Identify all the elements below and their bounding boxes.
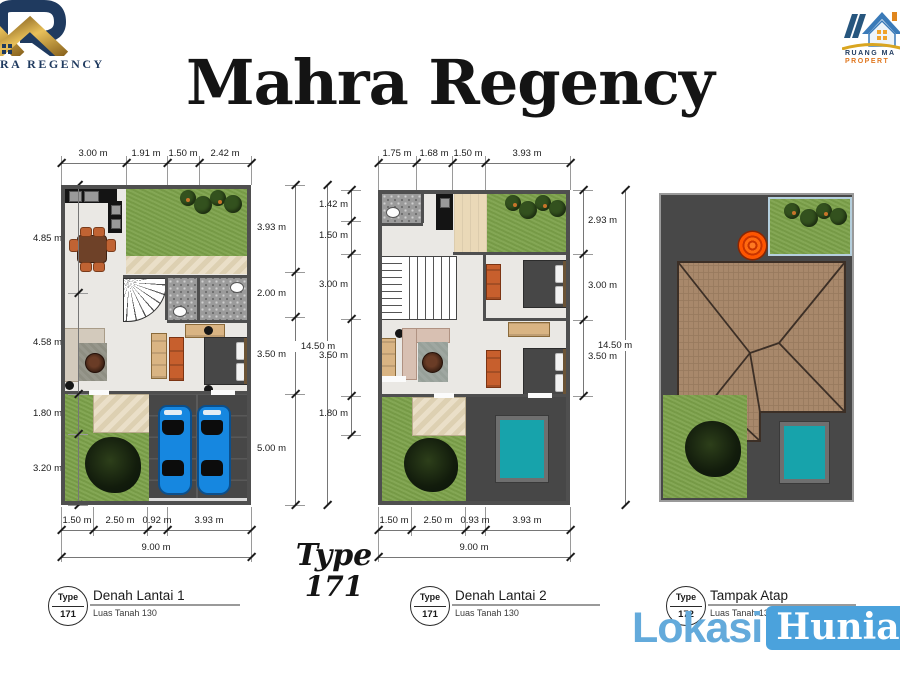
dim-label: 3.93 m bbox=[505, 148, 549, 159]
plan2-stairs bbox=[381, 256, 457, 320]
dim-label: 3.93 m bbox=[242, 222, 286, 233]
dim-ext bbox=[251, 507, 252, 536]
badge-divider bbox=[52, 606, 84, 607]
window bbox=[528, 393, 552, 398]
car-hood bbox=[203, 410, 221, 415]
dim-label: 5.00 m bbox=[242, 443, 286, 454]
dim-label: 1.50 m bbox=[302, 230, 348, 241]
car-rear-window bbox=[162, 460, 184, 476]
badge-type-number: 171 bbox=[411, 609, 449, 620]
dim-label: 1.50 m bbox=[446, 148, 490, 159]
plan2-roof-garden bbox=[487, 193, 567, 253]
shrub bbox=[224, 195, 242, 213]
dim-label: 3.00 m bbox=[71, 148, 115, 159]
slide: RA REGENCY Mahra Regency RUANG MA PROPER… bbox=[0, 0, 900, 675]
stove bbox=[84, 191, 99, 202]
dim-label: 3.00 m bbox=[302, 279, 348, 290]
skylight bbox=[496, 416, 548, 482]
dim-label: 2.93 m bbox=[588, 215, 632, 226]
caption-underline bbox=[452, 604, 600, 606]
type-display: Type 171 bbox=[282, 540, 386, 602]
floor-plan-1 bbox=[61, 185, 251, 505]
dim-line bbox=[78, 185, 79, 505]
roof-plan bbox=[659, 193, 854, 502]
appliance bbox=[440, 198, 450, 208]
car bbox=[197, 405, 231, 495]
dim-line bbox=[378, 530, 570, 531]
plan3-title: Tampak Atap bbox=[710, 588, 788, 603]
dim-label: 4.85 m bbox=[16, 233, 62, 244]
plan2-bathroom bbox=[381, 193, 421, 223]
sofa bbox=[402, 328, 417, 380]
sink bbox=[69, 191, 82, 202]
plan1-type-badge: Type 171 bbox=[48, 586, 88, 626]
dim-label: 0.93 m bbox=[453, 515, 497, 526]
type-display-number: 171 bbox=[282, 572, 386, 602]
page-title: Mahra Regency bbox=[0, 46, 900, 119]
watermark-hunian: Hunian bbox=[766, 606, 900, 650]
dining-chair bbox=[93, 227, 105, 237]
window bbox=[211, 390, 235, 395]
headboard bbox=[563, 349, 566, 395]
dim-label: 1.80 m bbox=[302, 408, 348, 419]
plan1-subtitle: Luas Tanah 130 bbox=[93, 608, 157, 618]
dim-label: 2.42 m bbox=[203, 148, 247, 159]
flower bbox=[186, 198, 190, 202]
dim-label: 9.00 m bbox=[134, 542, 178, 553]
dining-chair bbox=[93, 262, 105, 272]
dining-chair bbox=[80, 262, 92, 272]
dim-label: 3.50 m bbox=[588, 351, 632, 362]
dim-label: 3.93 m bbox=[505, 515, 549, 526]
skylight bbox=[780, 422, 829, 483]
shrub bbox=[549, 200, 566, 217]
dining-table bbox=[77, 235, 107, 263]
dim-label: 3.00 m bbox=[588, 280, 632, 291]
appliance bbox=[111, 205, 121, 215]
dim-label: 14.50 m bbox=[590, 340, 640, 351]
car-windshield bbox=[201, 420, 223, 435]
flower bbox=[543, 204, 547, 208]
tree bbox=[685, 421, 741, 477]
interior-wall bbox=[483, 318, 568, 321]
headboard bbox=[244, 338, 247, 384]
house-logo-icon bbox=[842, 4, 900, 50]
property-logo-line1: RUANG MA bbox=[845, 50, 896, 58]
dim-ext bbox=[570, 507, 571, 536]
plan1-stairs bbox=[123, 278, 167, 322]
plan1-carport bbox=[149, 394, 247, 501]
interior-wall bbox=[123, 275, 247, 278]
car bbox=[158, 405, 192, 495]
dim-label: 2.00 m bbox=[242, 288, 286, 299]
cabinet bbox=[486, 350, 501, 388]
dim-label: 9.00 m bbox=[452, 542, 496, 553]
dim-label: 1.50 m bbox=[372, 515, 416, 526]
plan2-carport-roof bbox=[466, 397, 567, 503]
plan2-type-badge: Type 171 bbox=[410, 586, 450, 626]
plan1-front-terrace bbox=[93, 394, 151, 433]
dim-label: 1.50 m bbox=[55, 515, 99, 526]
badge-type-label: Type bbox=[411, 592, 449, 602]
dim-label: 1.42 m bbox=[302, 199, 348, 210]
nightstand bbox=[204, 326, 213, 335]
dim-line bbox=[61, 163, 251, 164]
door-opening bbox=[89, 390, 109, 395]
plan1-bathroom-2 bbox=[199, 278, 247, 320]
stair-run bbox=[382, 257, 402, 319]
interior-wall bbox=[421, 193, 424, 223]
car-hood bbox=[164, 410, 182, 415]
plan1-terrace bbox=[126, 256, 247, 274]
dim-line bbox=[61, 557, 251, 558]
dim-label: 3.93 m bbox=[187, 515, 231, 526]
badge-type-label: Type bbox=[49, 592, 87, 602]
flower bbox=[513, 203, 517, 207]
window bbox=[380, 376, 406, 382]
coffee-table bbox=[85, 353, 105, 373]
property-logo bbox=[842, 4, 900, 55]
plan3-front-lawn bbox=[663, 395, 747, 498]
dim-line bbox=[378, 557, 570, 558]
dim-label: 1.50 m bbox=[161, 148, 205, 159]
interior-wall bbox=[381, 223, 423, 226]
door-opening bbox=[434, 393, 454, 398]
dim-label: 3.50 m bbox=[242, 349, 286, 360]
plan1-kitchen-counter-side bbox=[108, 201, 122, 233]
bed bbox=[523, 260, 567, 308]
gate bbox=[149, 498, 247, 501]
dim-label: 3.20 m bbox=[16, 463, 62, 474]
car-windshield bbox=[162, 420, 184, 435]
toilet bbox=[173, 306, 187, 317]
floor-plan-2 bbox=[378, 190, 570, 505]
cabinet bbox=[380, 338, 396, 380]
wardrobe bbox=[436, 193, 453, 230]
dim-tick bbox=[323, 500, 332, 509]
toilet bbox=[386, 207, 400, 218]
badge-divider bbox=[414, 606, 446, 607]
badge-type-label: Type bbox=[667, 592, 705, 602]
interior-wall bbox=[167, 320, 247, 323]
car-rear-window bbox=[201, 460, 223, 476]
plan1-bathroom-1 bbox=[167, 278, 197, 320]
plan2-subtitle: Luas Tanah 130 bbox=[455, 608, 519, 618]
cabinet bbox=[151, 333, 167, 379]
coffee-table bbox=[422, 352, 443, 373]
dim-label: 4.58 m bbox=[16, 337, 62, 348]
side-table bbox=[65, 381, 74, 390]
dim-label: 0.92 m bbox=[135, 515, 179, 526]
property-logo-line2: PROPERT bbox=[845, 58, 896, 66]
interior-wall bbox=[483, 254, 486, 320]
tree bbox=[85, 437, 141, 493]
stair-run bbox=[402, 257, 456, 319]
dim-line bbox=[378, 163, 570, 164]
bed bbox=[523, 348, 567, 396]
interior-wall bbox=[197, 278, 200, 320]
bench bbox=[508, 322, 550, 337]
caption-underline bbox=[90, 604, 240, 606]
dim-line bbox=[583, 190, 584, 396]
plan2-terrace bbox=[454, 193, 487, 253]
headboard bbox=[563, 261, 566, 307]
interior-wall bbox=[165, 278, 168, 320]
badge-type-number: 171 bbox=[49, 609, 87, 620]
dim-label: 1.80 m bbox=[16, 408, 62, 419]
dim-label: 3.50 m bbox=[302, 350, 348, 361]
flower bbox=[218, 200, 222, 204]
dining-chair bbox=[80, 227, 92, 237]
cabinet bbox=[169, 337, 184, 381]
bed bbox=[204, 337, 248, 385]
interior-wall bbox=[453, 252, 568, 255]
type-display-word: Type bbox=[282, 540, 386, 572]
sofa bbox=[63, 328, 79, 382]
plan1-title: Denah Lantai 1 bbox=[93, 588, 185, 603]
dim-line bbox=[351, 190, 352, 435]
lokasi-hunian-watermark: Lokasi Hunian bbox=[632, 606, 900, 650]
watermark-lokasi: Lokasi bbox=[632, 606, 762, 650]
tree bbox=[404, 438, 458, 492]
appliance bbox=[111, 219, 121, 229]
plan1-back-garden bbox=[126, 188, 247, 256]
property-logo-caption: RUANG MA PROPERT bbox=[845, 50, 896, 66]
cabinet bbox=[486, 264, 501, 300]
plan2-title: Denah Lantai 2 bbox=[455, 588, 547, 603]
dim-tick bbox=[621, 500, 630, 509]
plan2-front-terrace bbox=[412, 397, 466, 436]
dining-chair bbox=[106, 239, 116, 252]
